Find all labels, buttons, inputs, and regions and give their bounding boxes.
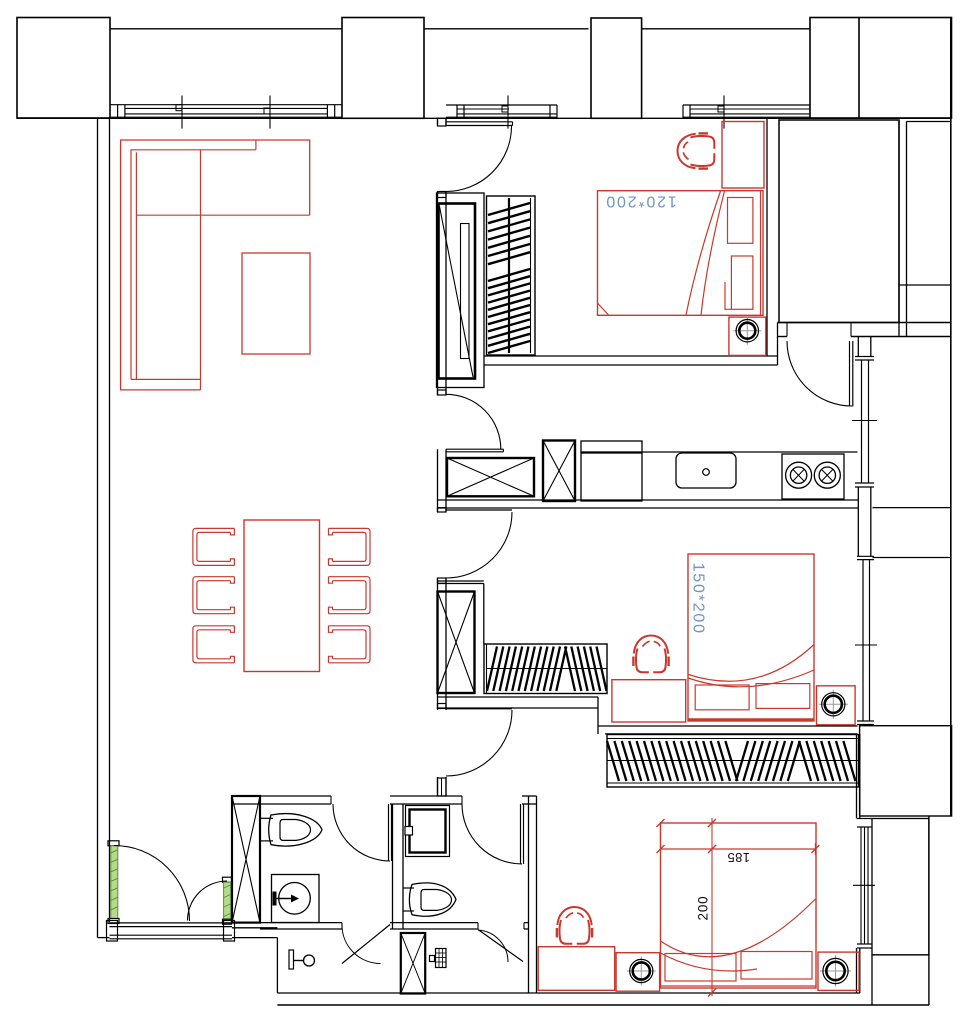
svg-text:120*200: 120*200: [604, 193, 676, 210]
svg-text:185: 185: [727, 850, 750, 865]
svg-text:200: 200: [696, 896, 711, 921]
svg-text:150*200: 150*200: [690, 563, 707, 635]
